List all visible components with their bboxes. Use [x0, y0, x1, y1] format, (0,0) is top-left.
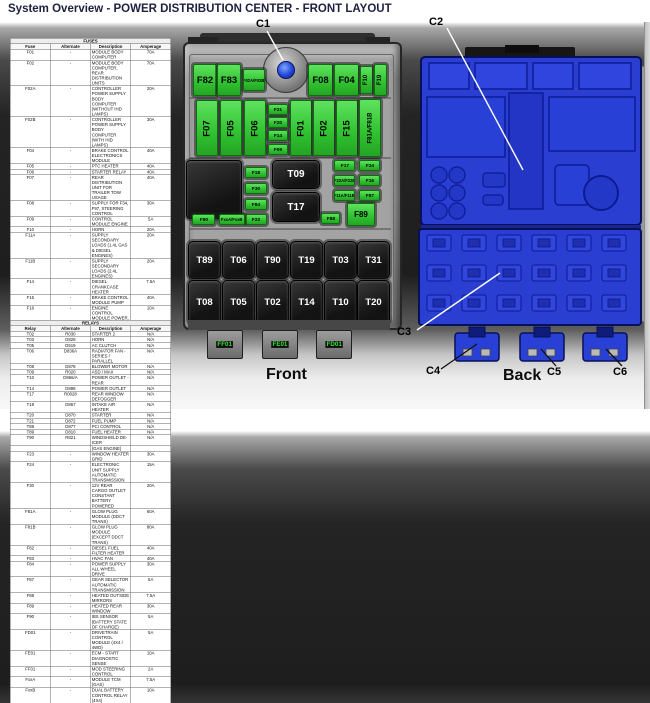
cell: 80A	[131, 524, 171, 545]
cell: IBS SENSOR (BATTERY STATE OF CHARGE)	[91, 614, 131, 630]
back-connector-c6	[583, 327, 627, 361]
cell: -	[50, 545, 90, 556]
fuse-f09: F09	[268, 144, 288, 155]
cell: -	[50, 677, 90, 688]
cell: -	[50, 650, 90, 666]
back-connector-c5	[520, 327, 564, 361]
table-row: F11B-SUPPLY SECONDARY LOADS (2.4L ENGINE…	[10, 258, 171, 279]
front-view-caption: Front	[266, 366, 307, 384]
fuse-f21: F21	[268, 104, 288, 115]
cell: DRIVETRAIN CONTROL MODULE (4X4 / 4WD)	[91, 630, 131, 651]
cell: F02B	[10, 117, 50, 148]
cell: F09	[10, 216, 50, 227]
cell: ELECTRONIC UNIT SUPPLY AUTOMATIC TRANSMI…	[91, 462, 131, 483]
cell: 60A	[131, 509, 171, 525]
cell: GEAR SELECTOR AUTOMATIC TRANSMISSION	[91, 577, 131, 593]
fuse-f14: F14	[268, 130, 288, 141]
relay-t08: T08	[188, 280, 221, 324]
relay-t06: T06	[222, 241, 255, 279]
table-row: F02A-CONTROLLER POWER SUPPLY BODY COMPUT…	[10, 86, 171, 117]
cell: F24	[10, 462, 50, 483]
cell: D836A	[50, 348, 90, 364]
cell: WINDOW HEATER GRID	[91, 451, 131, 462]
relay-t03: T03	[324, 241, 357, 279]
fuse-f81ab: F81A/F81B	[359, 99, 381, 157]
fuse-f08: F08	[308, 64, 333, 96]
cell: 7.5A	[131, 279, 171, 295]
cell: CONTROLLER POWER SUPPLY BODY COMPUTER (W…	[91, 117, 131, 148]
cell: -	[50, 603, 90, 614]
cell: FF01	[10, 666, 50, 677]
cell: 30A	[131, 200, 171, 216]
fuse-f83: F83	[217, 64, 241, 96]
fuse-f07: F07	[196, 100, 218, 156]
relay-t89: T89	[188, 241, 221, 279]
table-row: F08-SUPPLY FOR F34, F97, STEERING CONTRO…	[10, 200, 171, 216]
callout-c1: C1	[256, 18, 270, 30]
cell: 40A	[131, 148, 171, 164]
cell: F02	[10, 60, 50, 86]
fuse-f89: F89	[347, 203, 375, 226]
cell: -	[50, 216, 90, 227]
table-row: F88-HEATED OUTSIDE MIRRORS7.5A	[10, 593, 171, 604]
callout-c4: C4	[426, 365, 440, 377]
table-row: F81B-GLOW PLUG MODULE (EXCEPT DDCT TRANS…	[10, 524, 171, 545]
table-row: F89-HEATED REAR WINDOW30A	[10, 603, 171, 614]
fuse-f24: F24	[359, 160, 380, 171]
connector-ff01: FF01	[207, 330, 243, 359]
relay-t14: T14	[290, 280, 323, 324]
cell: 30A	[131, 603, 171, 614]
cell: SUPPLY SECONDARY LOADS (2.4L ENGINES)	[91, 258, 131, 279]
table-row: F01-MODULE BODY COMPUTER70A	[10, 49, 171, 60]
cell: F04	[10, 148, 50, 164]
cell: F02A	[10, 86, 50, 117]
power-post-terminal	[277, 61, 295, 79]
cell: SUPPLY SECONDARY LOADS (1.4L GAS & DIESE…	[91, 232, 131, 258]
cell: -	[50, 577, 90, 593]
cell: BRAKE CONTROL MODULE PUMP	[91, 295, 131, 306]
table-row: F11A-SUPPLY SECONDARY LOADS (1.4L GAS & …	[10, 232, 171, 258]
table-row: F07-REAR DISTRIBUTION UNIT FOR TRAILER T…	[10, 175, 171, 201]
cell: BRAKE CONTROL ELECTRONICS MODULE	[91, 148, 131, 164]
cell: -	[50, 148, 90, 164]
table-row: F30-12V REAR CARGO OUTLET CONSTANT BATTE…	[10, 483, 171, 509]
fuse-f02ab: F02A/F02B	[243, 69, 265, 91]
cell: 5A	[131, 614, 171, 630]
cell: 30A	[131, 451, 171, 462]
table-row: T19D867INTAKE AIR HEATERN/A	[10, 402, 171, 413]
table-row: F87-GEAR SELECTOR AUTOMATIC TRANSMISSION…	[10, 577, 171, 593]
cell: F30	[10, 483, 50, 509]
cell: RADIATOR FAN - SERIES / PARALLEL	[91, 348, 131, 364]
relay-t31: T31	[357, 241, 390, 279]
cell: -	[50, 451, 90, 462]
cell: -	[50, 462, 90, 483]
cell: -	[50, 49, 90, 60]
cell: -	[50, 509, 90, 525]
cell: F11B	[10, 258, 50, 279]
cell: CONTROLLER POWER SUPPLY BODY COMPUTER (W…	[91, 86, 131, 117]
cell: 70A	[131, 60, 171, 86]
cell: INTAKE AIR HEATER	[91, 402, 131, 413]
table-row: F23-WINDOW HEATER GRID30A	[10, 451, 171, 462]
cell: CONTROL MODULE ENGINE	[91, 216, 131, 227]
cell: N/A	[131, 402, 171, 413]
cell: 70A	[131, 49, 171, 60]
cell: -	[50, 630, 90, 651]
fuse-f06: F06	[244, 100, 266, 156]
fuse-fxxab: FxxA/FxxB	[219, 214, 245, 225]
fuse-f15: F15	[336, 100, 358, 156]
cell: T06	[10, 348, 50, 364]
cell: FE01	[10, 650, 50, 666]
connector-fe01: FE01	[262, 330, 298, 359]
cell: N/A	[131, 375, 171, 386]
cell: MOD STEERING CONTROL	[91, 666, 131, 677]
cell: -	[50, 561, 90, 577]
table-row: F82-DIESEL FUEL FILTER HEATER40A	[10, 545, 171, 556]
relay-table-wrap: RELAYSRelayAlternateDescriptionAmperageT…	[10, 320, 171, 446]
cell: MODULE BODY COMPUTER, REAR DISTRIBUTION …	[91, 60, 131, 86]
cell: GLOW PLUG MODULE (DDCT TRANS)	[91, 509, 131, 525]
cell: DIESEL CRANKCASE HEATER	[91, 279, 131, 295]
table-row: FD01-DRIVETRAIN CONTROL MODULE (4X4 / 4W…	[10, 630, 171, 651]
callout-c6: C6	[613, 366, 627, 378]
back-view-render	[405, 45, 650, 363]
fuse-f04: F04	[334, 64, 359, 96]
cell: F87	[10, 577, 50, 593]
cell: R0028	[50, 391, 90, 402]
cell: -	[50, 117, 90, 148]
cell: F07	[10, 175, 50, 201]
fuse-f11ab: F11A/F11B	[334, 190, 355, 201]
cell: N/A	[131, 348, 171, 364]
cell: F23	[10, 451, 50, 462]
cell: -	[50, 593, 90, 604]
callout-c5: C5	[547, 366, 561, 378]
cell: WINDSHIELD DE-ICER	[91, 435, 131, 446]
cell: F15	[10, 295, 50, 306]
cell: F82	[10, 545, 50, 556]
cell: POWER OUTLET	[91, 386, 131, 392]
table-row: T10D866/APOWER OUTLET - REARN/A	[10, 375, 171, 386]
fuse-f23: F23	[245, 214, 267, 225]
back-connector-c4	[455, 327, 499, 361]
connector-fd01: FD01	[316, 330, 352, 359]
cell: F14	[10, 279, 50, 295]
cell: 2A	[131, 666, 171, 677]
table-row: F09-CONTROL MODULE ENGINE5A	[10, 216, 171, 227]
cell: 7.5A	[131, 677, 171, 688]
cell: DIESEL FUEL FILTER HEATER	[91, 545, 131, 556]
cell: F90	[10, 614, 50, 630]
cell: REAR DISTRIBUTION UNIT FOR TRAILER TOW U…	[91, 175, 131, 201]
cell: -	[50, 614, 90, 630]
cell: -	[50, 483, 90, 509]
cell: REAR WINDOW DEFOGGER	[91, 391, 131, 402]
cell: ECM - START DIAGNOSTIC SENSE	[91, 650, 131, 666]
table-row: F90-IBS SENSOR (BATTERY STATE OF CHARGE)…	[10, 614, 171, 630]
connector-strip	[188, 320, 390, 330]
cell: -	[50, 232, 90, 258]
cell: N/A	[131, 435, 171, 446]
relay-t10: T10	[324, 280, 357, 324]
relay-t17: T17	[272, 192, 320, 222]
cell: D867	[50, 402, 90, 413]
cell: F84	[10, 561, 50, 577]
cell: 40A	[131, 545, 171, 556]
scrollbar[interactable]	[644, 22, 650, 409]
cell: GLOW PLUG MODULE (EXCEPT DDCT TRANS)	[91, 524, 131, 545]
fuse-f90: F90	[192, 214, 215, 225]
cell: 10A	[131, 650, 171, 666]
title-bar: System Overview - POWER DISTRIBUTION CEN…	[0, 0, 650, 22]
table-row: F04-BRAKE CONTROL ELECTRONICS MODULE40A	[10, 148, 171, 164]
table-row: F02B-CONTROLLER POWER SUPPLY BODY COMPUT…	[10, 117, 171, 148]
cell: FxxB	[10, 687, 50, 703]
fuse-f18: F18	[245, 167, 267, 178]
cell: -	[50, 60, 90, 86]
cell: -	[50, 524, 90, 545]
fuse-f87: F87	[359, 190, 380, 201]
cell: -	[50, 86, 90, 117]
cell: T17	[10, 391, 50, 402]
cell: F11A	[10, 232, 50, 258]
page: { "title": "System Overview - POWER DIST…	[0, 0, 650, 409]
cell: STARTER RELAY	[91, 169, 131, 175]
relay-unlabeled	[186, 160, 242, 219]
table-row: F84-POWER SUPPLY ALL WHEEL DRIVE30A	[10, 561, 171, 577]
relay-t19: T19	[290, 241, 323, 279]
table-row: F14-DIESEL CRANKCASE HEATER7.5A	[10, 279, 171, 295]
cell: DUAL BATTERY CONTROL RELAY (4X4)	[91, 687, 131, 703]
relay-table: RELAYSRelayAlternateDescriptionAmperageT…	[10, 320, 171, 446]
cell: SUPPLY FOR F34, F97, STEERING CONTROL	[91, 200, 131, 216]
callout-c3: C3	[397, 326, 411, 338]
cell: -	[50, 175, 90, 201]
table-row: FxxB-DUAL BATTERY CONTROL RELAY (4X4)10A	[10, 687, 171, 703]
relay-t20: T20	[357, 280, 390, 324]
cell: 20A	[131, 86, 171, 117]
fuse-f88: F88	[321, 213, 340, 224]
relay-t05: T05	[222, 280, 255, 324]
cell: MODULE BODY COMPUTER	[91, 49, 131, 60]
cell: 12V REAR CARGO OUTLET CONSTANT BATTERY P…	[91, 483, 131, 509]
back-view-caption: Back	[503, 367, 541, 385]
table-row: FF01-MOD STEERING CONTROL2A	[10, 666, 171, 677]
cell: 5A	[131, 577, 171, 593]
cell: -	[50, 200, 90, 216]
cell: 40A	[131, 295, 171, 306]
cell: F81B	[10, 524, 50, 545]
fuse-f30: F30	[245, 183, 267, 194]
cell: MODULE TCM (GAS)	[91, 677, 131, 688]
cell: -	[50, 258, 90, 279]
fuse-f05: F05	[220, 100, 242, 156]
relay-t90: T90	[256, 241, 289, 279]
fuse-f10: F10	[360, 66, 373, 94]
cell: F01	[10, 49, 50, 60]
cell: 7.5A	[131, 593, 171, 604]
table-row: T90R821WINDSHIELD DE-ICERN/A	[10, 435, 171, 446]
relay-t02: T02	[256, 280, 289, 324]
fuse-f82: F82	[193, 64, 217, 96]
cell: 20A	[131, 258, 171, 279]
cell: POWER SUPPLY ALL WHEEL DRIVE	[91, 561, 131, 577]
cell: HEATED OUTSIDE MIRRORS	[91, 593, 131, 604]
housing-ridge	[190, 157, 391, 159]
cell: T10	[10, 375, 50, 386]
fuse-f84: F84	[245, 199, 267, 210]
fuse-f22ab: F22A/F22B	[334, 175, 355, 186]
fuse-f01: F01	[290, 100, 312, 156]
table-row: F02-MODULE BODY COMPUTER, REAR DISTRIBUT…	[10, 60, 171, 86]
page-title: System Overview - POWER DISTRIBUTION CEN…	[8, 3, 392, 15]
cell: BLOWER MOTOR	[91, 364, 131, 370]
fuse-f19: F19	[374, 64, 387, 96]
housing-ridge	[190, 228, 391, 230]
cell: F08	[10, 200, 50, 216]
cell: 15A	[131, 462, 171, 483]
cell: -	[50, 295, 90, 306]
cell: 30A	[131, 117, 171, 148]
cell: 40A	[131, 175, 171, 201]
table-row: FxxA-MODULE TCM (GAS)7.5A	[10, 677, 171, 688]
fuse-f17: F17	[334, 160, 355, 171]
cell: -	[50, 666, 90, 677]
table-row: F24-ELECTRONIC UNIT SUPPLY AUTOMATIC TRA…	[10, 462, 171, 483]
cell: D866/A	[50, 375, 90, 386]
relay-t09: T09	[272, 160, 320, 189]
cell: F81A	[10, 509, 50, 525]
cell: -	[50, 279, 90, 295]
callout-c2: C2	[429, 16, 443, 28]
table-row: F15-BRAKE CONTROL MODULE PUMP40A	[10, 295, 171, 306]
cell: T19	[10, 402, 50, 413]
table-row: F81A-GLOW PLUG MODULE (DDCT TRANS)60A	[10, 509, 171, 525]
fuse-f02: F02	[313, 100, 335, 156]
table-row: T17R0028REAR WINDOW DEFOGGERN/A	[10, 391, 171, 402]
cell: POWER OUTLET - REAR	[91, 375, 131, 386]
cell: 20A	[131, 483, 171, 509]
cell: 30A	[131, 561, 171, 577]
cell: R821	[50, 435, 90, 446]
table-row: FE01-ECM - START DIAGNOSTIC SENSE10A	[10, 650, 171, 666]
fuse-f20: F20	[268, 117, 288, 128]
cell: T90	[10, 435, 50, 446]
cell: F89	[10, 603, 50, 614]
cell: 5A	[131, 216, 171, 227]
cell: 10A	[131, 687, 171, 703]
fuse-f16: F16	[359, 175, 380, 186]
cell: 20A	[131, 232, 171, 258]
cell: N/A	[131, 391, 171, 402]
cell: HEATED REAR WINDOW	[91, 603, 131, 614]
cell: FD01	[10, 630, 50, 651]
table-row: T06D836ARADIATOR FAN - SERIES / PARALLEL…	[10, 348, 171, 364]
cell: -	[50, 687, 90, 703]
cell: F88	[10, 593, 50, 604]
cell: FxxA	[10, 677, 50, 688]
cell: 5A	[131, 630, 171, 651]
